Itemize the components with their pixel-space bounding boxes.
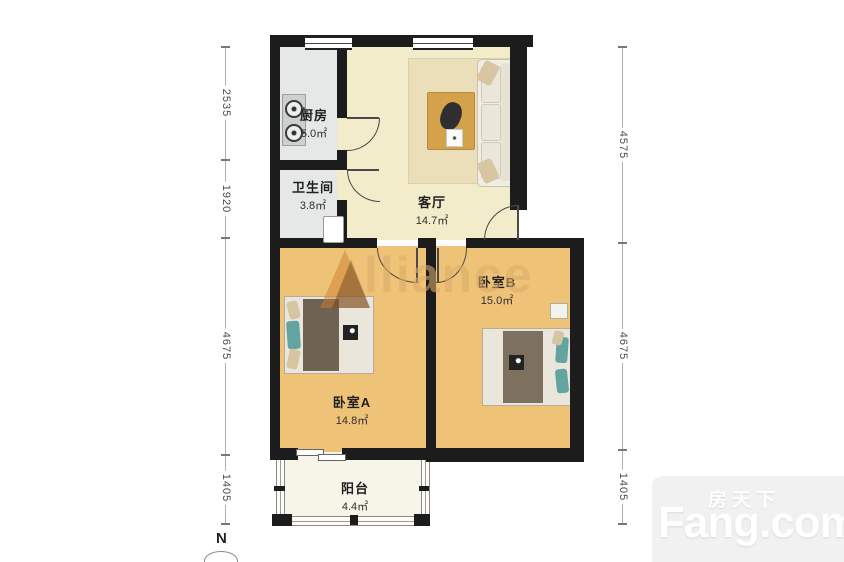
room-name: 客厅 (416, 192, 448, 211)
room-area: 14.8㎡ (333, 412, 371, 428)
bathroom-fixture (323, 216, 344, 243)
fang-logo-en: Fang.com (658, 498, 844, 548)
wall (342, 448, 430, 460)
bed-b-tv (509, 355, 524, 370)
window (305, 36, 352, 50)
wall (418, 238, 436, 248)
wall (270, 35, 280, 248)
compass-icon (204, 551, 238, 562)
dimension-label: 1405 (220, 471, 232, 505)
room-name: 卧室B (478, 272, 516, 291)
room-area: 5.0㎡ (300, 125, 328, 141)
balcony-sliding-door (318, 454, 346, 461)
bathroom-door-leaf (347, 169, 379, 171)
room-area: 14.7㎡ (416, 212, 448, 228)
wall (270, 448, 298, 460)
dimension-label: 4675 (220, 329, 232, 363)
balcony-rail-tick (274, 486, 285, 491)
coffee-table (427, 92, 475, 150)
room-label-balcony: 阳台 4.4㎡ (341, 478, 369, 514)
room-name: 厨房 (300, 105, 328, 124)
compass-north-label: N (216, 530, 227, 547)
room-label-bedroom-b: 卧室B 15.0㎡ (478, 272, 516, 308)
nightstand (550, 303, 568, 319)
bed-a-blanket (303, 299, 339, 371)
bed-b (482, 328, 572, 406)
bed-a (284, 296, 374, 374)
window (413, 36, 473, 50)
dimension-label: 1405 (617, 470, 629, 504)
dimension-line-right (622, 47, 623, 524)
room-label-bathroom: 卫生间 3.8㎡ (292, 177, 334, 213)
room-area: 15.0㎡ (478, 292, 516, 308)
room-label-kitchen: 厨房 5.0㎡ (300, 105, 328, 141)
wall (270, 238, 280, 460)
wall (510, 35, 527, 210)
bedroom-b-door-leaf (437, 248, 439, 282)
balcony-rail-tick (419, 486, 429, 491)
balcony-post (272, 514, 292, 526)
bed-a-pillow (286, 300, 301, 320)
wall (426, 448, 584, 462)
dimension-tick (221, 159, 230, 161)
bed-b-pillow-teal (555, 368, 569, 393)
teapot (437, 99, 465, 132)
room-area: 4.4㎡ (341, 498, 369, 514)
room-name: 阳台 (341, 478, 369, 497)
wall (278, 160, 347, 170)
balcony-post (414, 514, 430, 526)
room-label-bedroom-a: 卧室A 14.8㎡ (333, 392, 371, 428)
dimension-label: 4675 (617, 329, 629, 363)
dimension-tick (221, 237, 230, 239)
dimension-tick (618, 449, 627, 451)
room-name: 卧室A (333, 392, 371, 411)
floorplan-canvas: 厨房 5.0㎡ 卫生间 3.8㎡ 客厅 14.7㎡ 卧室A 14.8㎡ 卧室B … (0, 0, 844, 562)
room-label-living: 客厅 14.7㎡ (416, 192, 448, 228)
dimension-label: 4575 (617, 128, 629, 162)
wall (426, 248, 436, 458)
dimension-tick (221, 46, 230, 48)
kitchen-door-leaf (347, 117, 379, 119)
sofa-cushion (481, 104, 501, 141)
entry-door-leaf (517, 205, 519, 240)
wall (337, 47, 347, 118)
fang-logo: 房天下 Fang.com (652, 476, 844, 562)
dimension-tick (618, 46, 627, 48)
bedroom-a-door-leaf (416, 248, 418, 282)
dimension-tick (618, 523, 627, 525)
wall (570, 238, 584, 462)
bed-a-tv (343, 325, 358, 340)
dimension-label: 1920 (220, 182, 232, 216)
dimension-tick (221, 523, 230, 525)
balcony-rail-tick (350, 515, 358, 525)
tray (446, 129, 463, 147)
bed-a-pillow (286, 348, 301, 370)
bed-a-pillow-teal (286, 321, 301, 350)
dimension-label: 2535 (220, 86, 232, 120)
room-name: 卫生间 (292, 177, 334, 196)
dimension-tick (618, 242, 627, 244)
room-area: 3.8㎡ (292, 197, 334, 213)
dimension-tick (221, 454, 230, 456)
